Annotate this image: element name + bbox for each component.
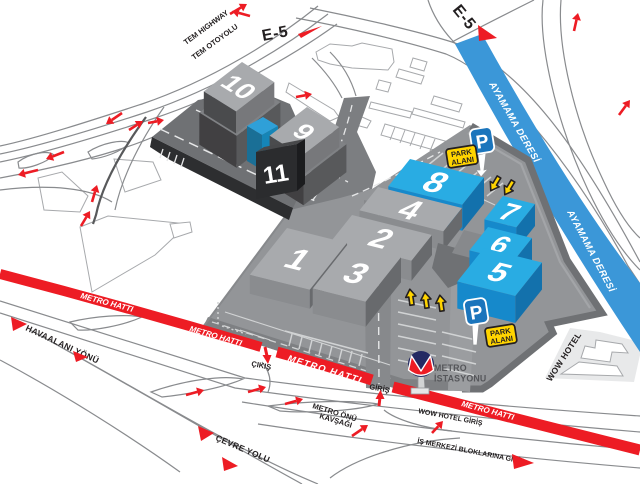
svg-text:METRO: METRO bbox=[434, 363, 467, 373]
svg-text:11: 11 bbox=[261, 159, 290, 190]
svg-text:İSTASYONU: İSTASYONU bbox=[434, 374, 486, 384]
